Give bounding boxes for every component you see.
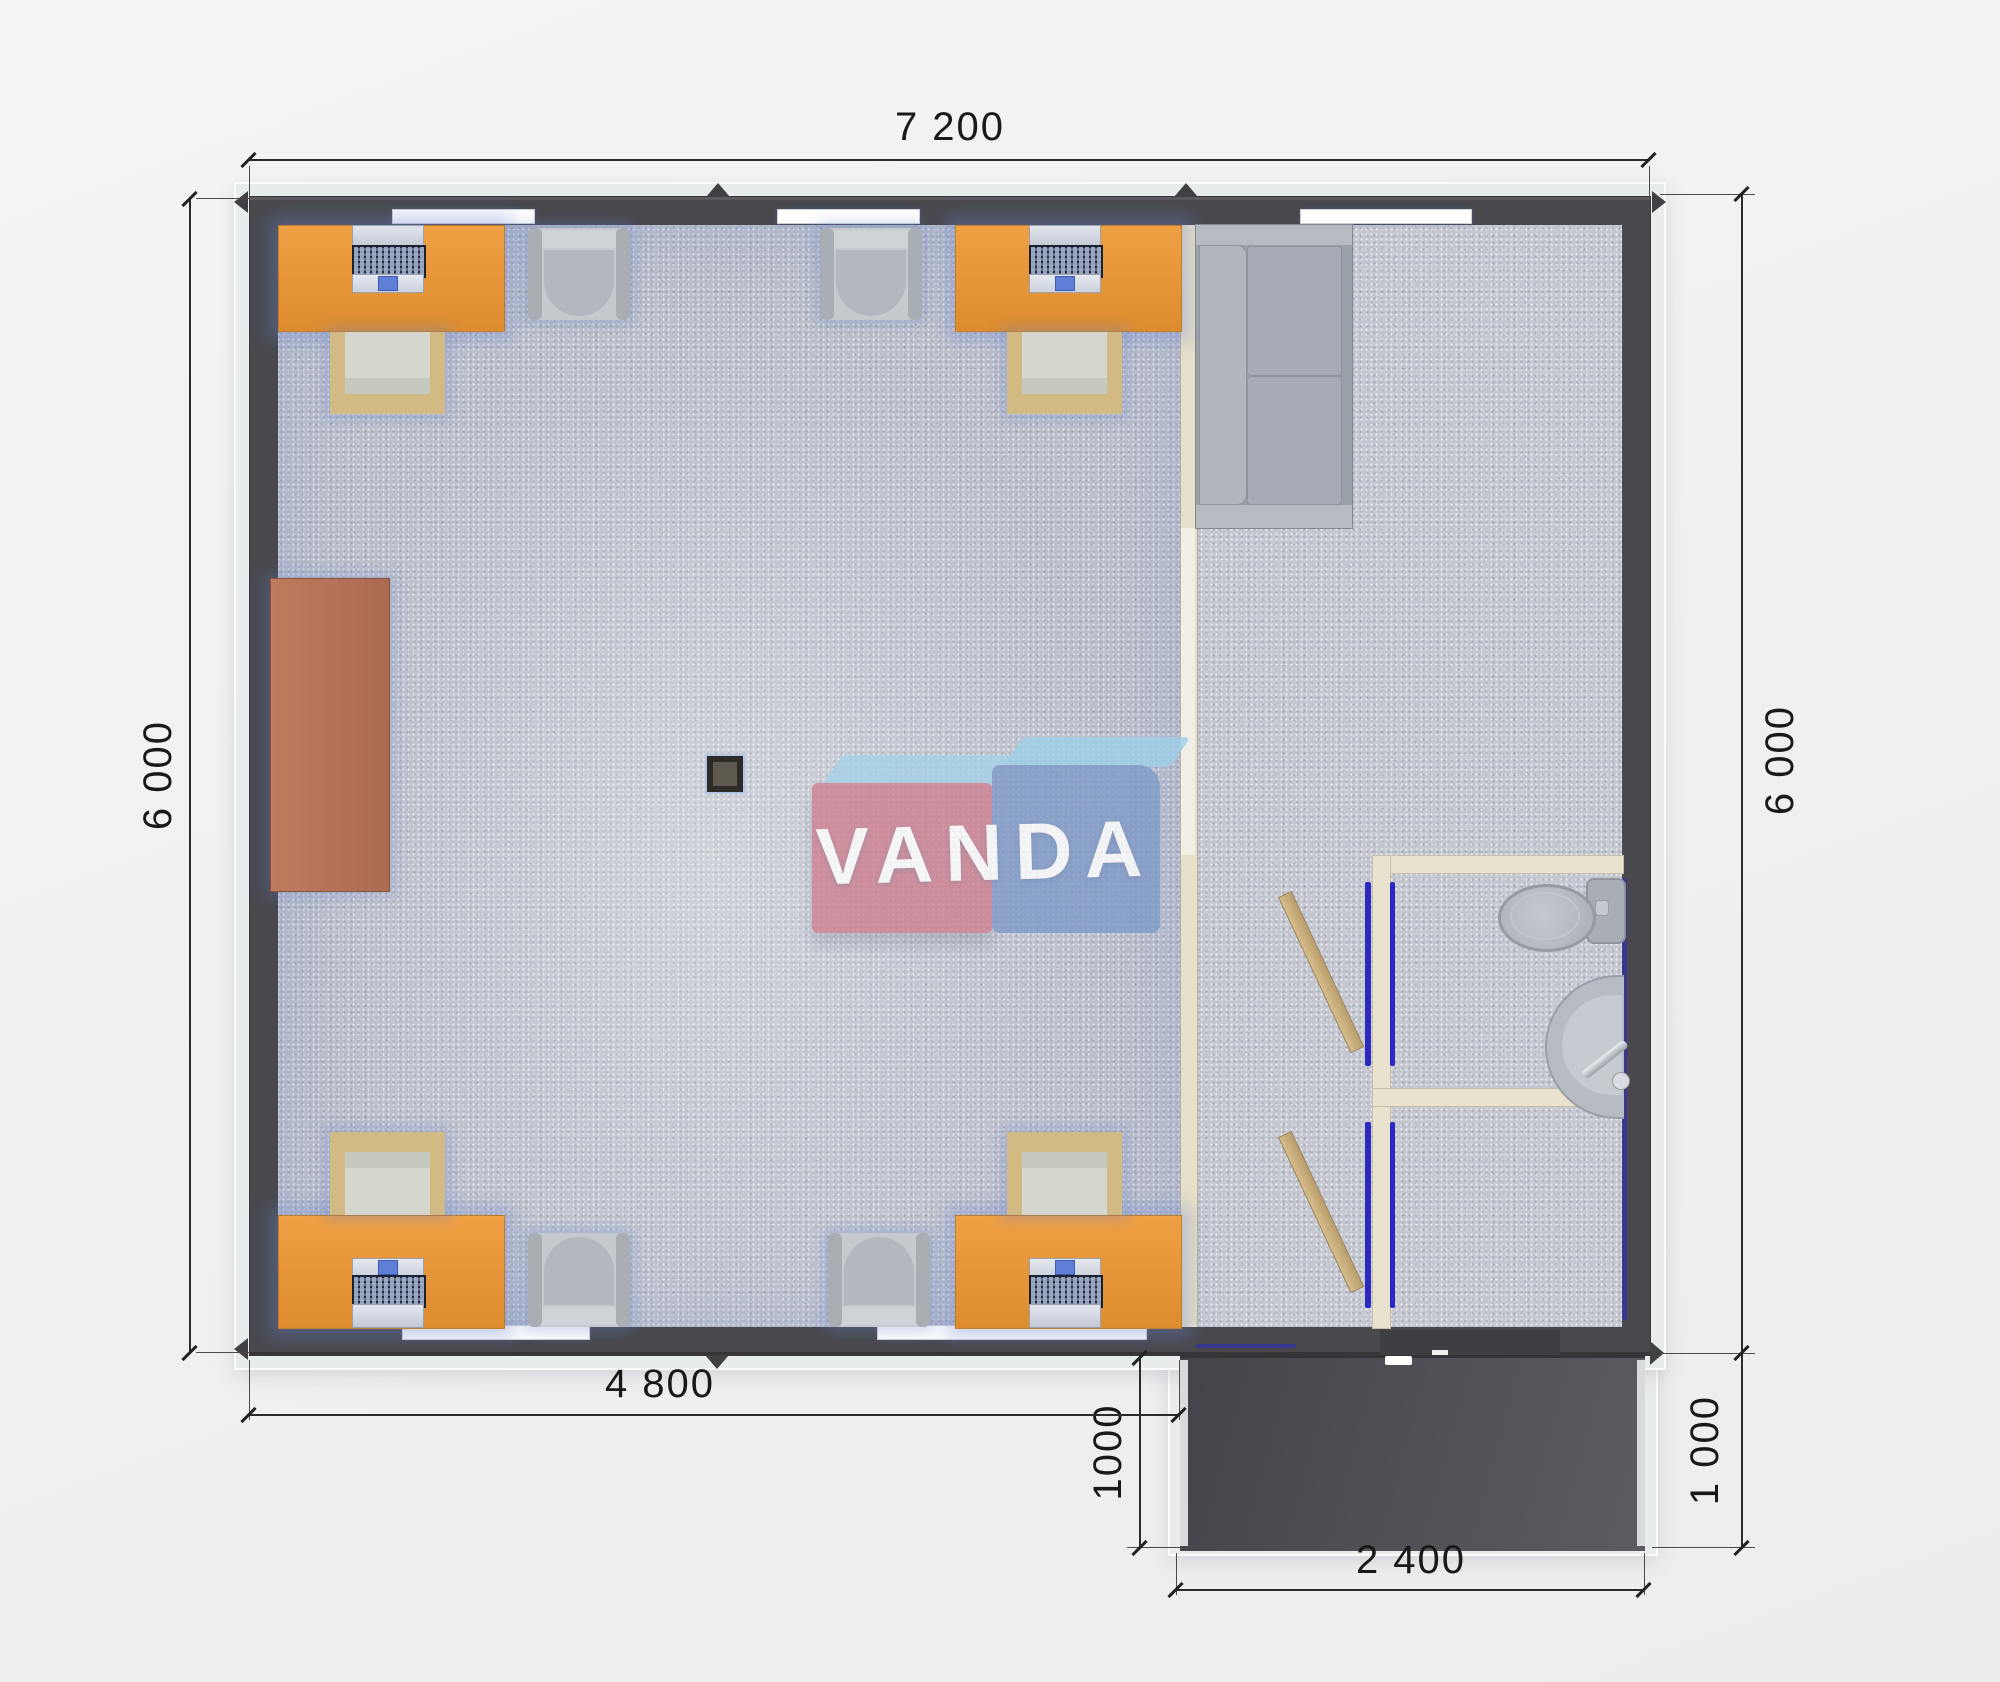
computer-mouse-top-left	[378, 276, 398, 291]
storage-door-frame-inner	[1390, 1122, 1395, 1308]
armchair-bottom-left	[528, 1233, 630, 1327]
dimension-label-porch-height-left: 1000	[1088, 1342, 1128, 1562]
desk-chair-top-left	[330, 332, 445, 414]
computer-monitor-bottom-right	[1029, 1304, 1101, 1328]
window-top-1	[392, 209, 535, 224]
desk-chair-bottom-right	[1007, 1132, 1122, 1215]
armchair-top-left	[528, 228, 630, 320]
armchair-top-right	[820, 228, 922, 320]
joint-arrow-top-1	[706, 183, 730, 197]
dimension-line-top	[250, 159, 1650, 161]
dimension-label-porch-height-right: 1 000	[1685, 1340, 1725, 1560]
witness-top-left	[249, 166, 250, 197]
bathroom-door-frame-outer	[1365, 882, 1371, 1066]
watermark-blue-top-face	[1002, 737, 1191, 767]
computer-mouse-top-right	[1055, 276, 1075, 291]
joint-arrow-top-2	[1174, 183, 1198, 197]
computer-monitor-bottom-left	[352, 1304, 424, 1328]
porch-post-right	[1637, 1360, 1645, 1546]
bathroom-door-frame-inner	[1390, 882, 1395, 1066]
toilet-flush-button	[1595, 900, 1609, 916]
desk-chair-top-right	[1007, 332, 1122, 414]
porch	[1180, 1355, 1645, 1551]
dimension-line-right	[1741, 194, 1743, 1548]
watermark-logo: VANDA	[800, 735, 1170, 955]
watermark-text: VANDA	[799, 802, 1171, 904]
dimension-label-porch-width: 2 400	[1177, 1538, 1645, 1583]
entrance-door	[1380, 1330, 1560, 1355]
floor-plan-canvas: VANDA 7 200 6 000 6 000 1 000 1000 4 800…	[0, 0, 2000, 1682]
dimension-label-left-height: 6 000	[138, 665, 178, 885]
witness-left-top	[196, 198, 250, 199]
dimension-label-inner-width: 4 800	[250, 1362, 1070, 1407]
computer-monitor-top-right	[1029, 225, 1101, 247]
storage-door-frame-outer	[1365, 1122, 1371, 1308]
dimension-line-4800	[250, 1414, 1179, 1416]
entrance-door-handle	[1385, 1356, 1412, 1365]
corner-arrow-top-left	[234, 191, 248, 213]
toilet-seat-ring	[1510, 892, 1580, 940]
dimension-label-top-width: 7 200	[250, 105, 1650, 150]
witness-left-bottom	[196, 1352, 250, 1353]
support-column	[707, 756, 743, 792]
porch-post-left	[1180, 1360, 1188, 1546]
armchair-bottom-right	[828, 1233, 930, 1327]
computer-monitor-top-left	[352, 225, 424, 247]
window-top-2	[777, 209, 920, 224]
dimension-line-left	[189, 199, 191, 1353]
partition-wall-panel	[1181, 528, 1195, 855]
bathroom-top-wall	[1372, 855, 1624, 874]
wall-accent-line	[1196, 1344, 1296, 1348]
corner-arrow-bottom-left	[234, 1338, 248, 1360]
window-top-hall	[1300, 209, 1472, 224]
computer-mouse-bottom-left	[378, 1260, 398, 1275]
witness-porch-left	[1127, 1547, 1182, 1548]
dimension-label-right-height: 6 000	[1760, 650, 1800, 870]
sideboard-table	[270, 578, 390, 892]
dimension-line-2400	[1177, 1589, 1645, 1591]
witness-top-right	[1649, 166, 1650, 197]
desk-chair-bottom-left	[330, 1132, 445, 1215]
computer-mouse-bottom-right	[1055, 1260, 1075, 1275]
dimension-line-porch-left	[1139, 1356, 1141, 1548]
faucet-knob	[1612, 1072, 1630, 1090]
sofa	[1196, 225, 1352, 528]
